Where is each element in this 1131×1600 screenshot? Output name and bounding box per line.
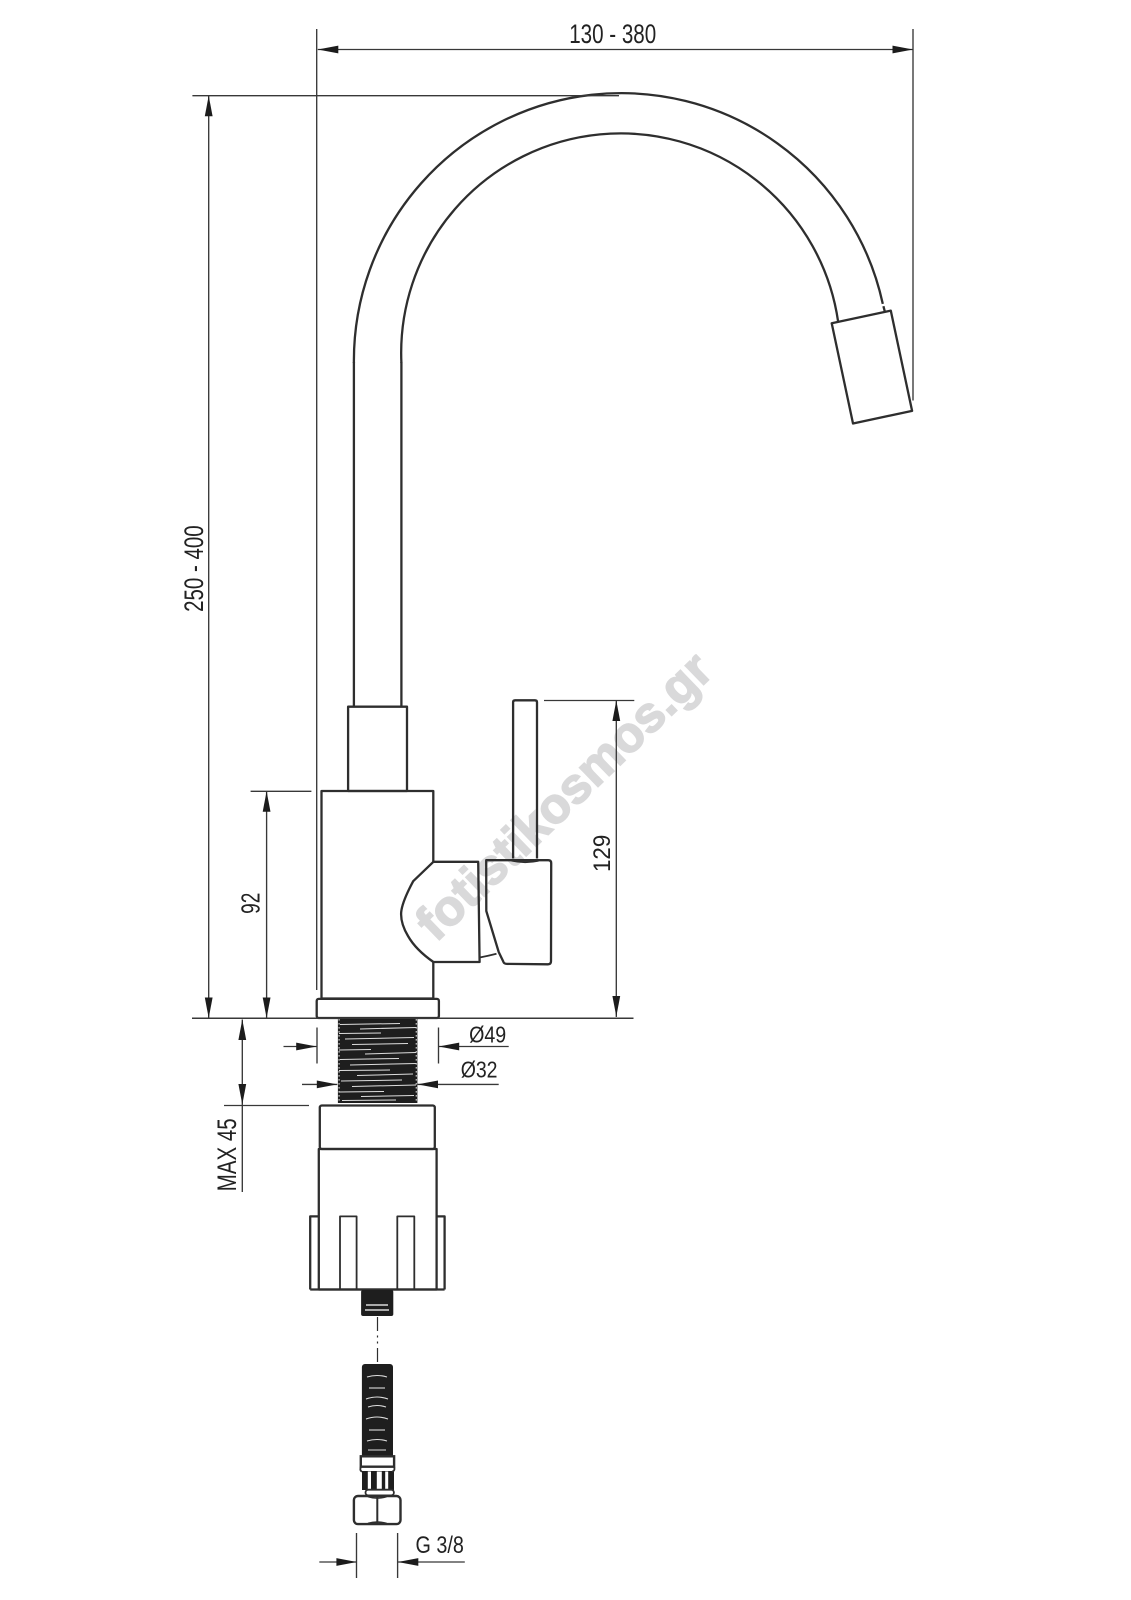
svg-text:MAX 45: MAX 45 [212, 1118, 242, 1191]
svg-text:Ø32: Ø32 [461, 1057, 498, 1083]
svg-text:Ø49: Ø49 [469, 1022, 506, 1048]
svg-text:G 3/8: G 3/8 [416, 1532, 464, 1559]
svg-text:92: 92 [238, 893, 266, 914]
svg-text:130 - 380: 130 - 380 [569, 19, 656, 49]
svg-text:250 - 400: 250 - 400 [179, 525, 209, 612]
svg-text:129: 129 [589, 835, 616, 872]
